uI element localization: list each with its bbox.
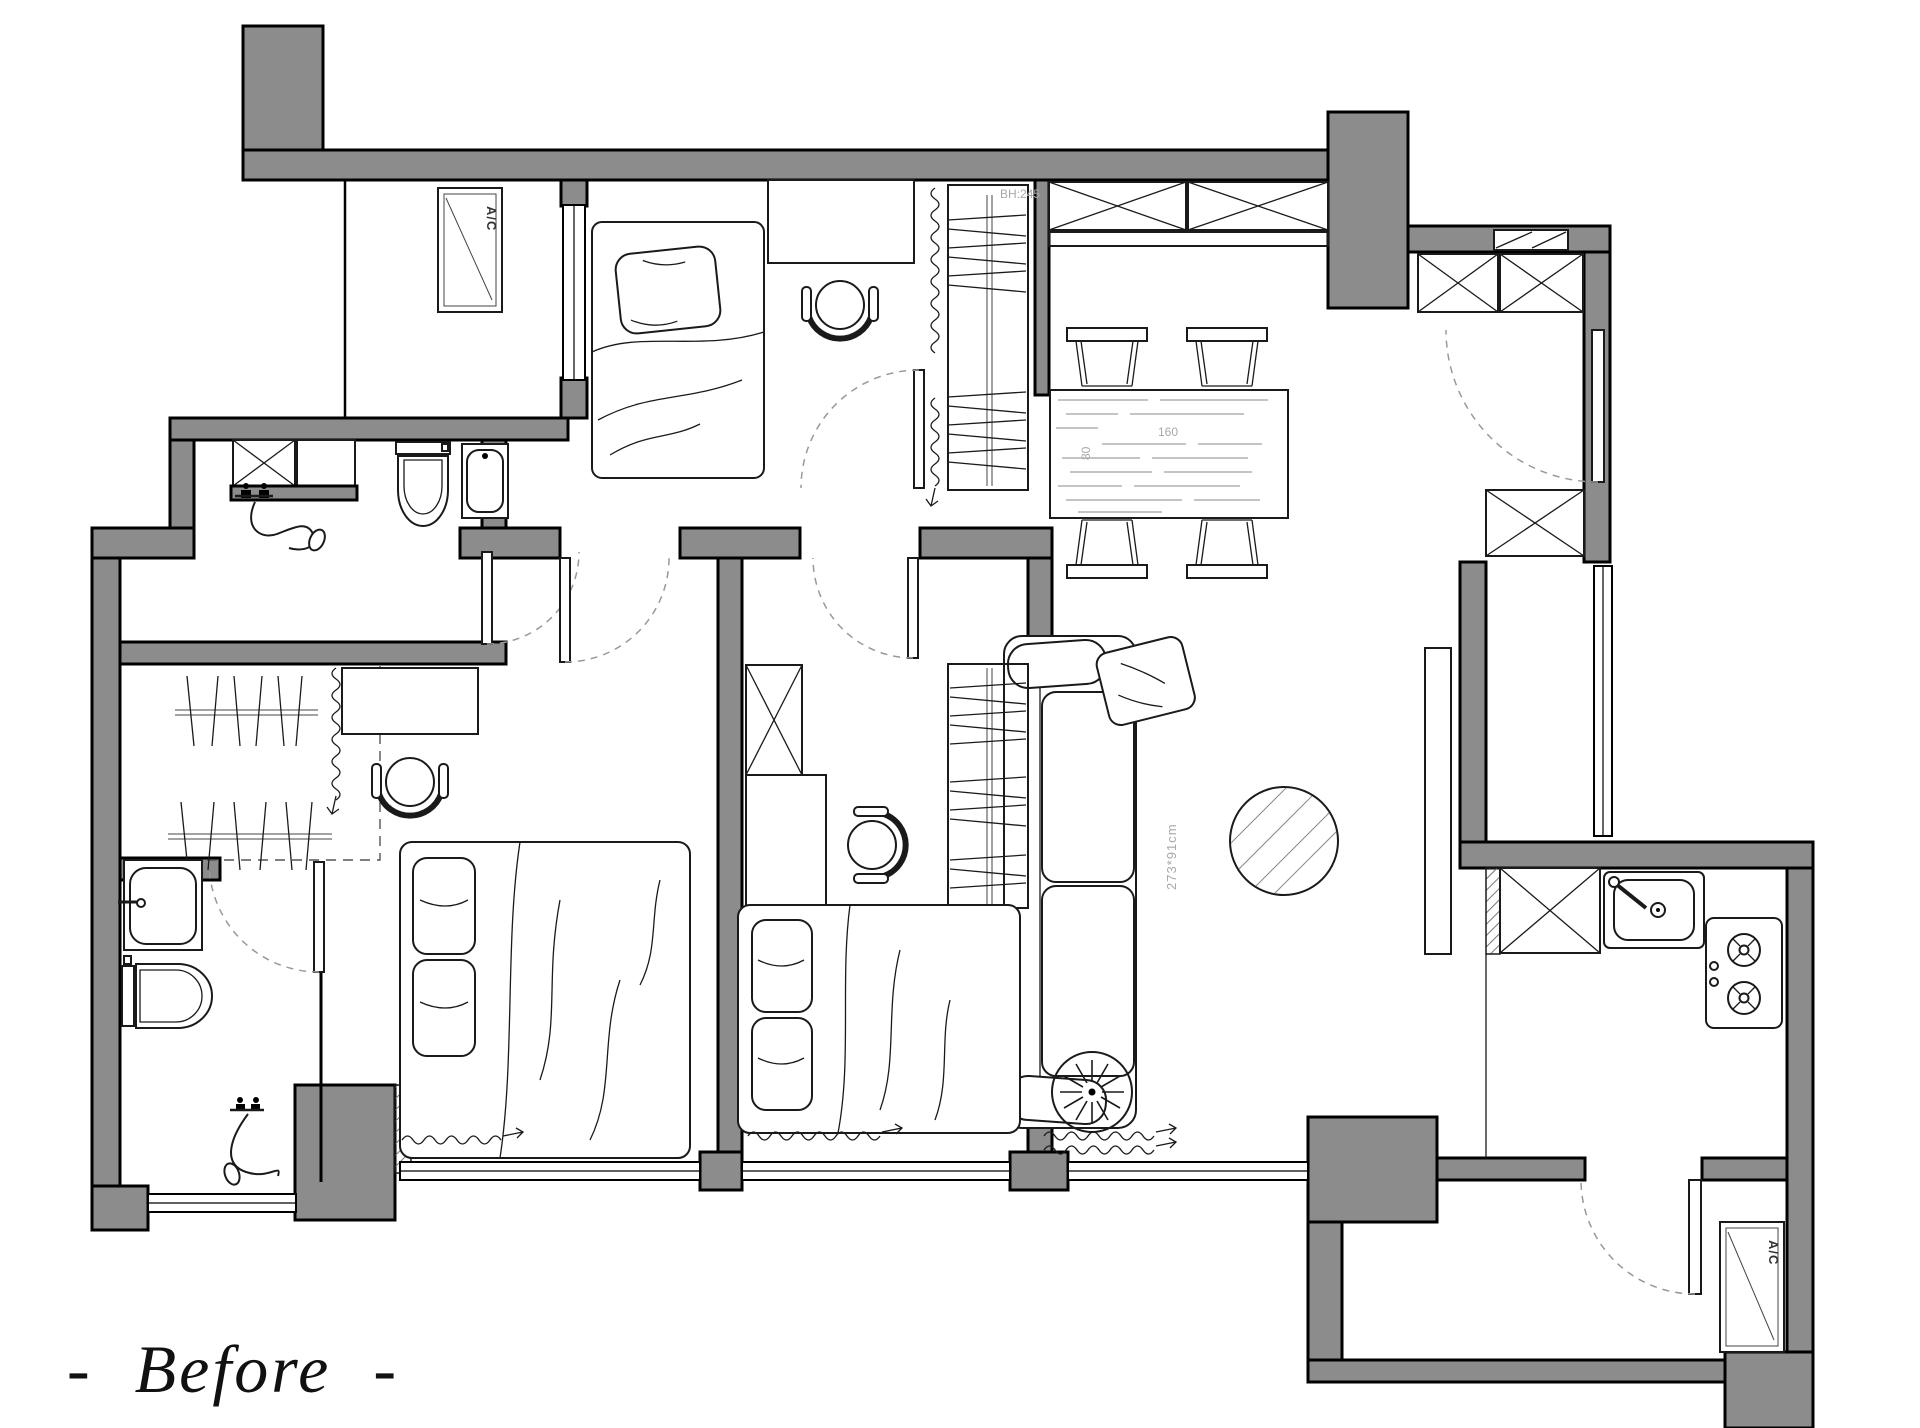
kitchen — [1500, 868, 1782, 1028]
wall-stub-bed2-window — [1010, 1152, 1068, 1190]
wall-top — [243, 150, 1328, 180]
sink-2 — [118, 860, 202, 950]
window-living-east — [1594, 566, 1612, 836]
door-bathroom2 — [209, 862, 324, 972]
floor-plan-page: A/C — [0, 0, 1920, 1428]
wall-left-exterior — [92, 528, 120, 1188]
door-entry — [1446, 330, 1604, 482]
chair-bedroom1 — [802, 281, 878, 339]
entry-shoe-shelf — [1494, 230, 1568, 250]
living-room: 273*91cm — [1004, 634, 1451, 1154]
wall-bath1-top — [170, 418, 568, 440]
wall-stub-master-window — [700, 1152, 742, 1190]
door-balcony2 — [1581, 1180, 1701, 1294]
toilet-1 — [396, 442, 450, 526]
curtain-wavy-master — [332, 668, 340, 800]
window-bedroom1-balcony — [563, 205, 585, 380]
bed-single — [592, 222, 764, 478]
table-width-label: 80 — [1079, 446, 1093, 460]
wall-dining-left — [1035, 180, 1049, 395]
entry-cabinet-1 — [1418, 254, 1498, 312]
master-bedroom — [168, 666, 690, 1158]
wardrobe-bedroom1 — [948, 185, 1028, 490]
wall-column-bottom-left — [295, 1085, 395, 1220]
caption: - Before - — [67, 1331, 399, 1407]
wall-balcony2-bottom — [1308, 1360, 1725, 1382]
desk-bedroom2 — [746, 775, 826, 907]
door-bedroom2 — [813, 558, 918, 658]
bed-master — [400, 842, 690, 1158]
bed-bedroom2 — [738, 905, 1020, 1133]
wall-corner-bottom-right — [1725, 1352, 1813, 1428]
fan-symbol — [1052, 1052, 1132, 1132]
chair-master — [372, 758, 448, 816]
wall-mid-a — [460, 528, 560, 558]
wall-column-bottom — [1308, 1117, 1437, 1222]
wall-window-stub-bottom — [561, 378, 587, 418]
stool-3 — [1067, 520, 1147, 578]
wall-hatch-kitchen — [1486, 868, 1500, 954]
floor-plan-drawing: A/C — [0, 0, 1920, 1428]
wall-corner-bottom-left — [92, 1186, 148, 1230]
kitchen-counter-cabinet — [1500, 868, 1600, 953]
window-bed2-south — [742, 1162, 1010, 1180]
shelf-dining — [1049, 232, 1328, 246]
entry-cabinet-2 — [1500, 254, 1583, 312]
desk-master — [342, 668, 478, 734]
wall-bath1-bottom — [120, 642, 506, 664]
kitchen-stove — [1706, 918, 1782, 1028]
entry — [1418, 230, 1584, 556]
wall-window-stub-top — [561, 180, 587, 206]
ac-label-bottom: A/C — [1766, 1240, 1781, 1265]
curtain-wavy-bedroom1-a — [931, 188, 939, 353]
ac-unit-top: A/C — [438, 188, 502, 312]
wall-mid-c — [920, 528, 1052, 558]
wall-balcony2-left — [1308, 1222, 1342, 1382]
wall-cabinet-dining-2 — [1188, 182, 1328, 230]
wall-left-top-connector — [92, 528, 194, 558]
chair-bedroom2 — [848, 807, 906, 883]
curtain-arrow-bedroom1 — [926, 488, 938, 506]
curtain-wavy-bedroom1-b — [931, 398, 939, 486]
coffee-table-round — [1222, 768, 1348, 912]
wall-column-top-right — [1328, 112, 1408, 308]
window-bath2-south — [148, 1194, 296, 1212]
window-master-south — [400, 1162, 700, 1180]
wall-right-mid — [1460, 562, 1486, 842]
shower-2 — [222, 1097, 279, 1187]
wall-mid-b — [680, 528, 800, 558]
stool-1 — [1067, 328, 1147, 386]
stool-4 — [1187, 520, 1267, 578]
balcony-top: A/C — [438, 188, 502, 312]
ac-unit-bottom: A/C — [1720, 1222, 1784, 1352]
door-bedroom1 — [801, 370, 924, 488]
dining-table: 160 80 — [1050, 390, 1288, 518]
cabinet-bedroom2 — [746, 665, 802, 775]
wall-kitchen-right — [1787, 868, 1813, 1382]
wall-cabinet-dining-1 — [1049, 182, 1186, 230]
hanging-clothes-icon — [187, 676, 302, 746]
ac-label-top: A/C — [484, 206, 499, 231]
entry-cabinet-low — [1486, 490, 1584, 556]
desk-bedroom1 — [768, 180, 914, 263]
kitchen-sink — [1604, 872, 1704, 948]
stool-2 — [1187, 328, 1267, 386]
balcony-bottom: A/C — [1720, 1222, 1784, 1352]
bathroom-2 — [118, 860, 279, 1187]
beam-height-label: BH:245 — [1000, 187, 1040, 201]
window-living-south — [1068, 1162, 1308, 1180]
sofa-size-label: 273*91cm — [1164, 823, 1179, 890]
wall-balcony2-divider-left — [1437, 1158, 1585, 1180]
bedroom-2 — [738, 664, 1028, 1140]
wall-balcony2-divider-right — [1702, 1158, 1787, 1180]
wall-kitchen-top — [1460, 842, 1813, 868]
table-length-label: 160 — [1158, 425, 1178, 439]
bedroom-1 — [592, 180, 1028, 506]
sink-1 — [462, 444, 508, 518]
closet-rod-1 — [175, 676, 318, 746]
toilet-2 — [122, 956, 212, 1028]
tv-cabinet — [1425, 648, 1451, 954]
